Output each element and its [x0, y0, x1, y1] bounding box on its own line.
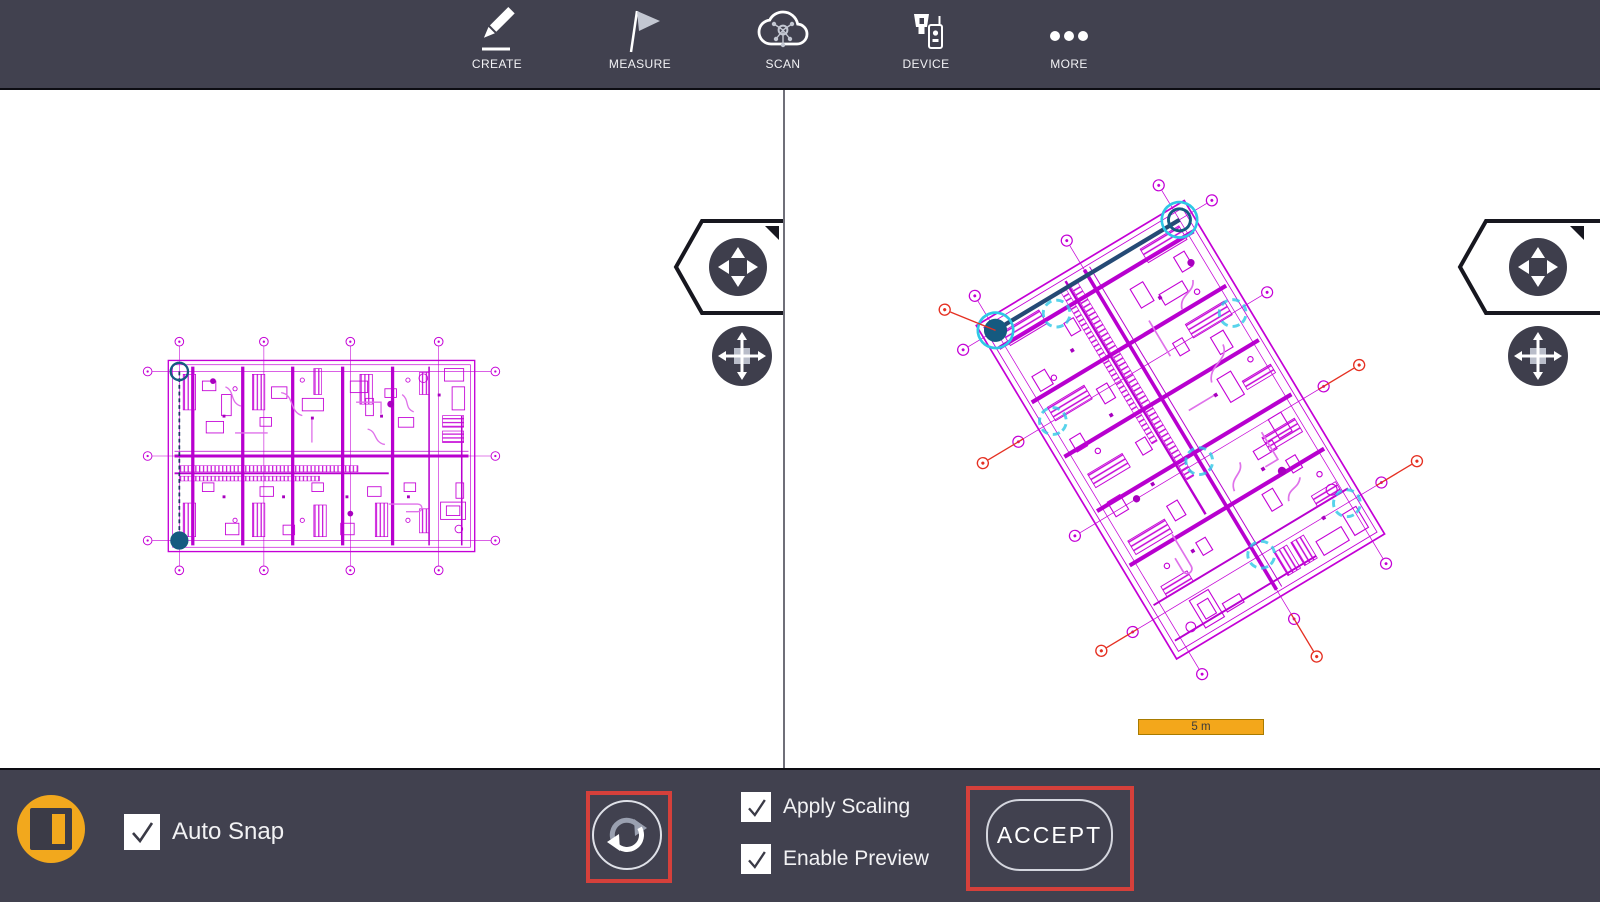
- app-toolbar: CREATE MEASURE: [0, 0, 1600, 90]
- toolbar-label-more: MORE: [1050, 57, 1088, 71]
- accept-button[interactable]: ACCEPT: [986, 799, 1113, 871]
- device-icon: [902, 2, 950, 54]
- pencil-icon: [473, 2, 521, 54]
- apply-scaling-label: Apply Scaling: [783, 792, 910, 822]
- apply-scaling-checkbox[interactable]: [741, 792, 771, 822]
- flag-icon: [616, 2, 664, 54]
- checkmark-icon: [127, 817, 157, 847]
- toolbar-item-scan[interactable]: SCAN: [728, 2, 838, 86]
- scale-bar: 5 m: [1138, 719, 1264, 735]
- accept-button-label: ACCEPT: [997, 822, 1102, 849]
- split-view-button[interactable]: [17, 795, 85, 863]
- ellipsis-icon: [1045, 2, 1093, 54]
- toolbar-item-create[interactable]: CREATE: [442, 2, 552, 86]
- toolbar-label-create: CREATE: [472, 57, 522, 71]
- rotate-sync-icon: [594, 802, 660, 868]
- checkmark-icon: [744, 847, 769, 872]
- app-window: { "toolbar": { "items": [ { "id": "creat…: [0, 0, 1600, 900]
- auto-snap-checkbox[interactable]: [124, 814, 160, 850]
- toolbar-label-scan: SCAN: [766, 57, 801, 71]
- split-view-icon: [30, 808, 72, 850]
- toolbar-item-device[interactable]: DEVICE: [871, 2, 981, 86]
- panel-divider: [783, 90, 785, 768]
- enable-preview-label: Enable Preview: [783, 844, 929, 874]
- move-button[interactable]: [1507, 325, 1569, 387]
- toolbar-item-measure[interactable]: MEASURE: [585, 2, 695, 86]
- pan-flyout[interactable]: [1450, 218, 1600, 318]
- checkmark-icon: [744, 795, 769, 820]
- pan-flyout[interactable]: [666, 218, 783, 318]
- enable-preview-checkbox[interactable]: [741, 844, 771, 874]
- toolbar-item-more[interactable]: MORE: [1014, 2, 1124, 86]
- move-button[interactable]: [711, 325, 773, 387]
- pan-button: [709, 238, 767, 296]
- pan-button: [1509, 238, 1567, 296]
- rotate-button[interactable]: [592, 800, 662, 870]
- scale-bar-label: 5 m: [1191, 721, 1210, 733]
- right-viewport[interactable]: 5 m: [785, 90, 1600, 768]
- floorplan-target-drawing: [925, 149, 1436, 710]
- auto-snap-label: Auto Snap: [172, 814, 284, 850]
- cloud-scan-icon: [757, 2, 809, 54]
- toolbar-label-measure: MEASURE: [609, 57, 671, 71]
- toolbar-label-device: DEVICE: [902, 57, 949, 71]
- floorplan-source-drawing: [139, 331, 504, 581]
- left-viewport[interactable]: 10 m: [0, 90, 783, 768]
